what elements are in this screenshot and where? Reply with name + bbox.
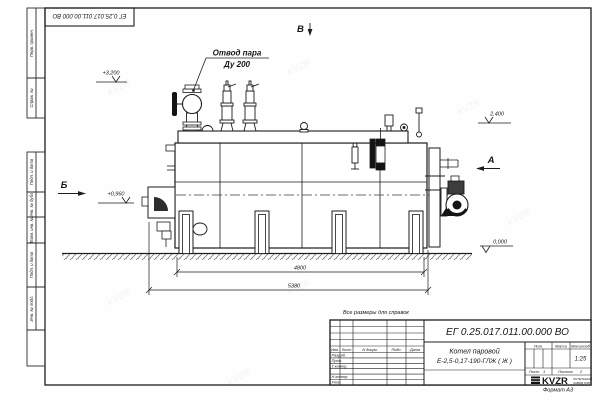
- svg-text:Перв. примен.: Перв. примен.: [29, 29, 34, 57]
- svg-text:Справ. №: Справ. №: [29, 88, 34, 107]
- svg-text:Лист: Лист: [341, 348, 352, 352]
- svg-text:2,400: 2,400: [489, 112, 505, 118]
- svg-text:Инв. № дубл.: Инв. № дубл.: [29, 192, 34, 218]
- svg-text:Масса: Масса: [555, 343, 568, 348]
- svg-text:В: В: [297, 24, 304, 35]
- dimension-4800-label: 4800: [294, 266, 307, 272]
- format-note: Формат А3: [543, 388, 574, 394]
- logo-text: KVZR: [542, 376, 568, 387]
- svg-text:Т.контр.: Т.контр.: [332, 363, 348, 368]
- svg-text:Лист: Лист: [528, 369, 540, 374]
- svg-text:Ду 200: Ду 200: [223, 60, 251, 69]
- product-name-line1: Котел паровой: [449, 348, 499, 356]
- svg-text:Изм.: Изм.: [331, 348, 339, 352]
- org-line2: ЗАВОД РЭП: [573, 381, 591, 385]
- svg-text:Листов: Листов: [557, 369, 573, 374]
- svg-text:Н.контр.: Н.контр.: [332, 374, 349, 379]
- title-block-right-headers: Лит. Масса Масштаб: [533, 343, 591, 348]
- svg-text:Дата: Дата: [409, 348, 420, 352]
- svg-text:А: А: [487, 155, 495, 166]
- svg-text:+0,960: +0,960: [108, 192, 126, 198]
- svg-text:+3,200: +3,200: [103, 71, 121, 77]
- svg-text:N докум.: N докум.: [362, 348, 377, 352]
- svg-text:Разраб.: Разраб.: [332, 353, 346, 358]
- svg-text:Инв. № подл.: Инв. № подл.: [29, 296, 34, 322]
- svg-text:Утв.: Утв.: [332, 380, 341, 385]
- dimension-5380-label: 5380: [288, 284, 301, 290]
- ground-level: [62, 254, 472, 261]
- blueprint-svg: KVZR KVZR KVZR KVZR KVZR KVZR KVZR KVZR …: [0, 0, 600, 400]
- svg-text:Лит.: Лит.: [533, 343, 543, 348]
- product-name-line2: Е-2,5-0,17-190-ГЛЖ ( Ж ): [437, 358, 512, 365]
- svg-text:Подп.: Подп.: [391, 348, 401, 352]
- svg-text:ЕГ 0.25.017.011.00.000 ВО: ЕГ 0.25.017.011.00.000 ВО: [52, 12, 126, 18]
- svg-text:Отвод пара: Отвод пара: [213, 49, 262, 58]
- drawing-sheet: KVZR KVZR KVZR KVZR KVZR KVZR KVZR KVZR …: [0, 0, 600, 400]
- svg-text:Пров.: Пров.: [332, 358, 343, 363]
- svg-text:1: 1: [543, 369, 545, 374]
- svg-text:Подп. и дата: Подп. и дата: [29, 251, 34, 278]
- reference-note: Все размеры для справок: [343, 310, 409, 316]
- svg-text:Взам. инв. №: Взам. инв. №: [29, 217, 34, 243]
- svg-text:Масштаб: Масштаб: [571, 343, 590, 348]
- manhole: [193, 223, 207, 235]
- svg-text:0,000: 0,000: [493, 240, 508, 246]
- boiler-body: [175, 131, 427, 248]
- svg-text:Подп. и дата: Подп. и дата: [29, 158, 34, 185]
- scale-value: 1:25: [575, 357, 587, 363]
- title-block: Изм. Лист N докум. Подп. Дата Разраб. Пр…: [330, 320, 593, 394]
- svg-text:Б: Б: [61, 180, 68, 191]
- doc-number: ЕГ 0.25.017.011.00.000 ВО: [446, 327, 569, 338]
